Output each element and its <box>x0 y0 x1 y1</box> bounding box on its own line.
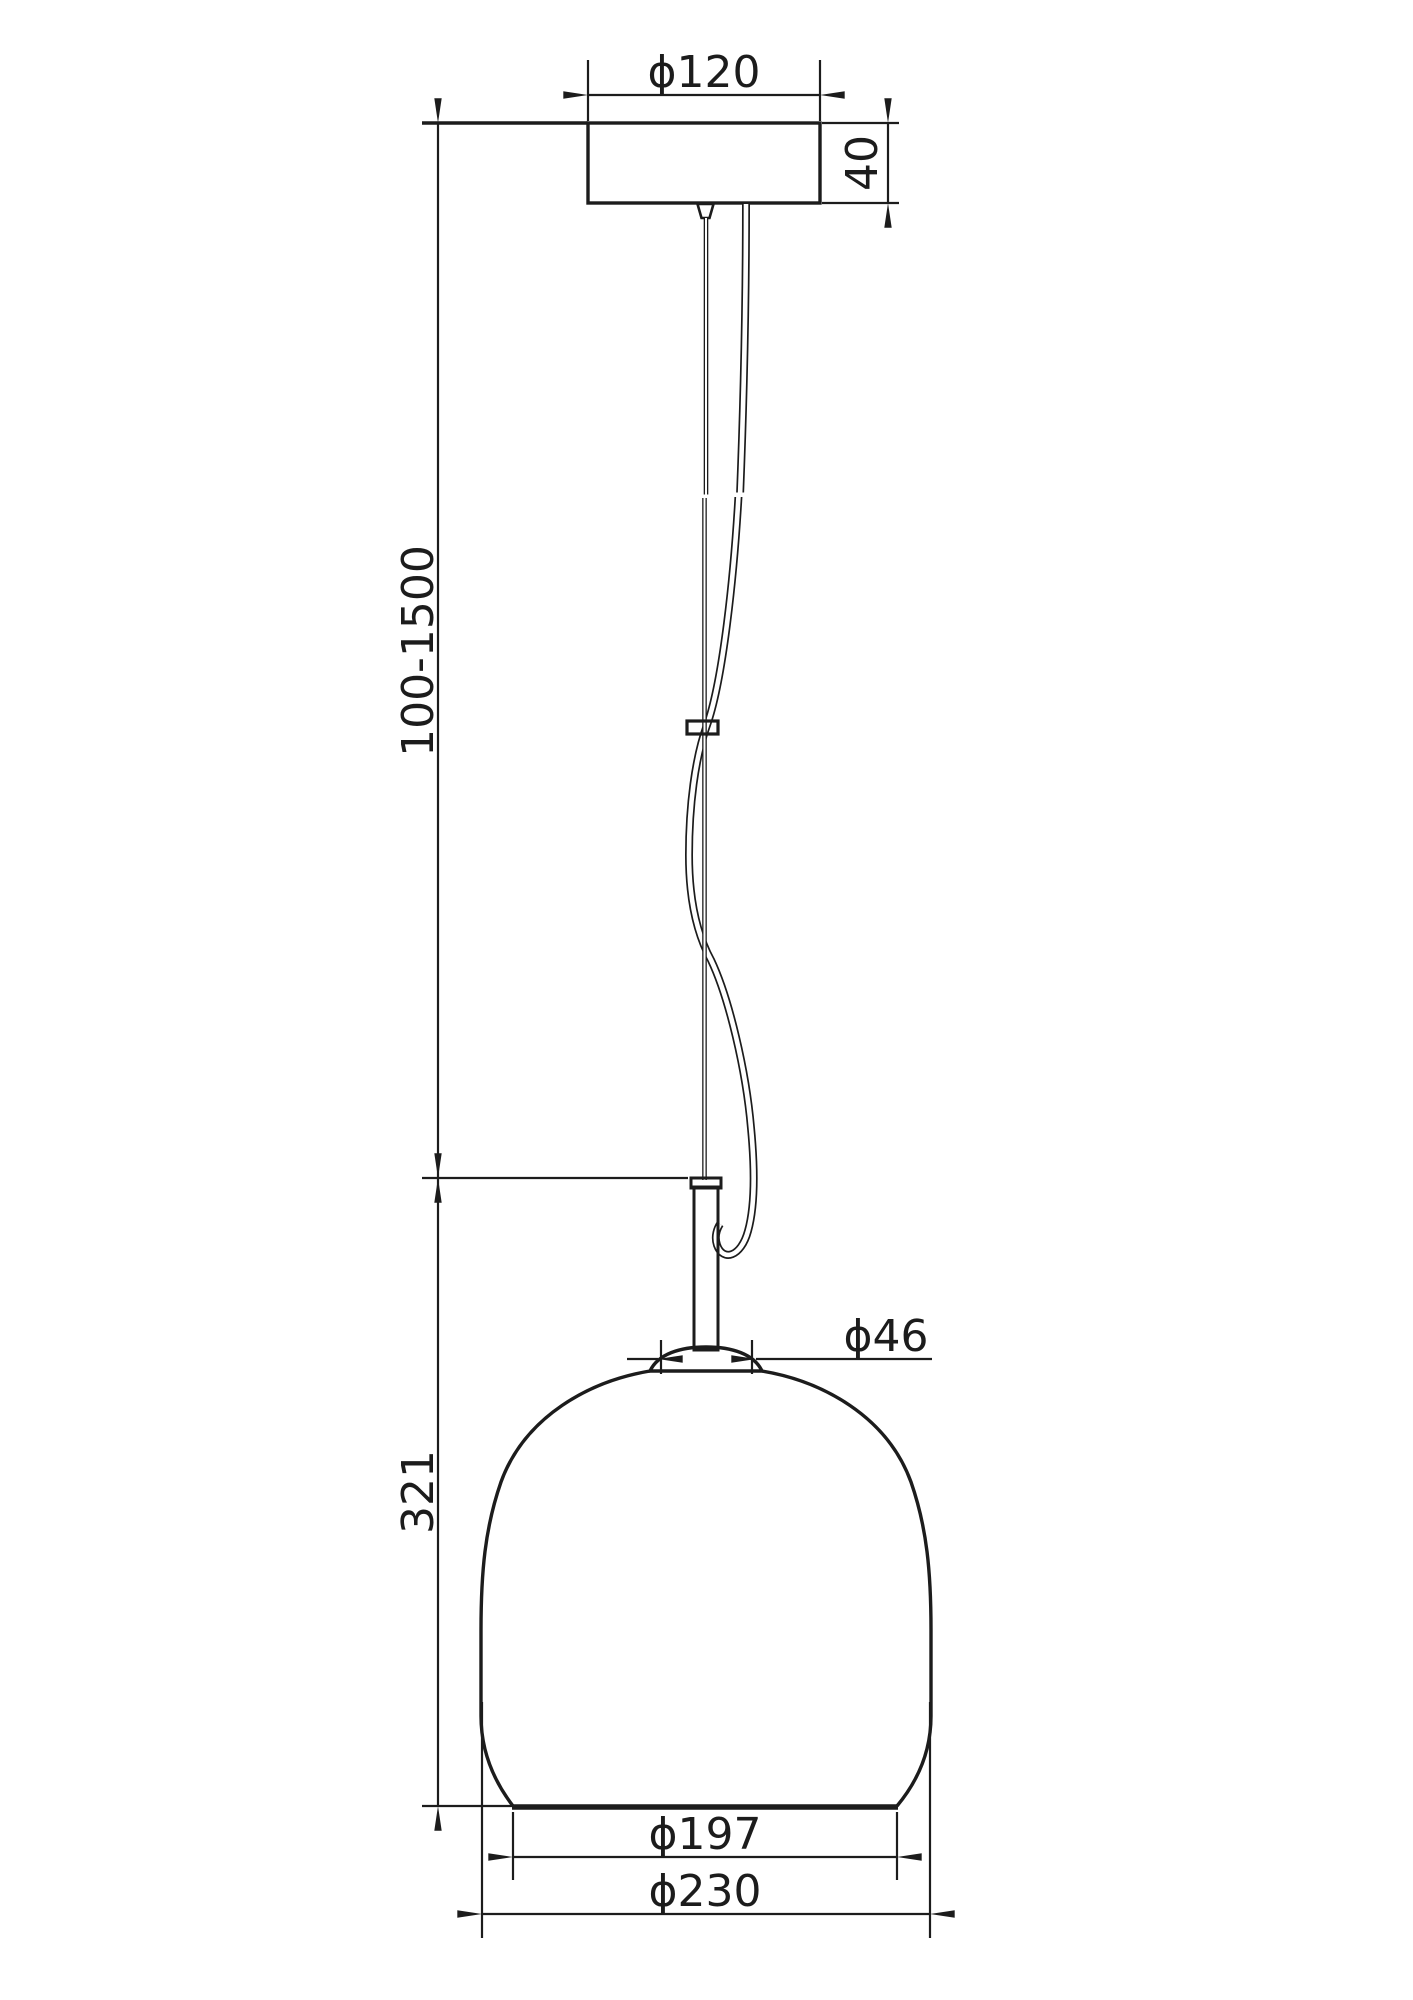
lamp-stem <box>694 1187 718 1350</box>
drawing-page: { "page": { "background": "#ffffff", "in… <box>0 0 1413 2000</box>
dim-suspension-length: 100-1500 <box>393 123 688 1178</box>
ceiling-canopy <box>588 123 820 203</box>
rod-break-joint <box>698 495 713 499</box>
dim-label-shade-height: 321 <box>393 1450 444 1534</box>
suspension-assembly <box>687 204 754 1255</box>
power-cord <box>689 496 754 1255</box>
power-cord-core <box>689 496 754 1255</box>
dim-label-neck-diameter: ϕ46 <box>843 1311 928 1362</box>
dim-label-shade-diameter: ϕ230 <box>648 1866 761 1917</box>
dim-canopy-height: 40 <box>822 123 899 203</box>
dim-label-canopy-height: 40 <box>837 135 888 191</box>
dim-label-suspension-length: 100-1500 <box>393 545 444 757</box>
technical-drawing-canvas: 100-1500 321 ϕ120 40 <box>0 0 1413 2000</box>
lamp-shade <box>481 1371 931 1806</box>
lamp-stem-cap <box>691 1178 721 1188</box>
dim-label-canopy-diameter: ϕ120 <box>647 47 760 98</box>
dim-canopy-diameter: ϕ120 <box>588 47 820 121</box>
lamp-body <box>481 1178 931 1807</box>
cord-break-joint <box>729 493 751 498</box>
dim-label-opening-diameter: ϕ197 <box>648 1809 761 1860</box>
rod-connector <box>698 204 714 218</box>
